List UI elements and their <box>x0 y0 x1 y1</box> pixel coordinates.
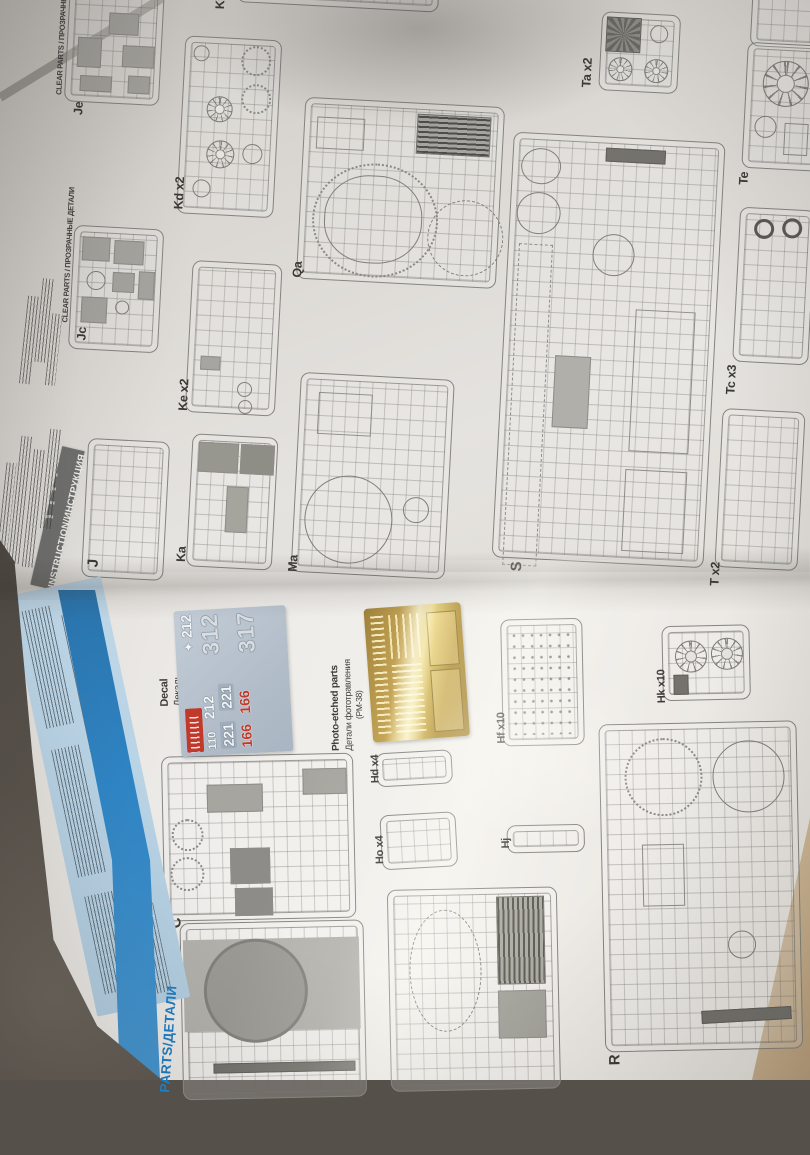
fret-panel <box>426 610 460 666</box>
sprue-box-hj <box>506 824 585 854</box>
fret-panel <box>430 668 464 732</box>
fret-parts <box>374 669 392 734</box>
sprue-part-ring <box>712 740 785 813</box>
sprue-part-gear <box>171 819 204 852</box>
sprue-part <box>213 1061 355 1074</box>
decal-number-red: 166 <box>238 724 255 748</box>
sprue-box-hd <box>375 749 453 787</box>
fret-parts <box>392 663 427 733</box>
sprue-box-hk <box>661 624 751 701</box>
sprue-part-hatched <box>496 896 546 985</box>
photo-etched-label-ru: Детали фототравления <box>341 659 354 751</box>
sprue-box-c <box>161 753 356 922</box>
sprue-label-hf: Hf x10 <box>495 712 508 743</box>
sprue-part-wheel <box>711 637 744 670</box>
sprue-label-hk: Hk x10 <box>655 669 668 703</box>
decal-maker-logo <box>185 708 204 753</box>
sprue-label-r: R <box>606 1054 623 1065</box>
sprue-part <box>642 844 685 907</box>
decal-number: 110 <box>206 731 219 749</box>
sprue-part-wheel <box>675 640 708 673</box>
photo-etched-label: Photo-etched parts Детали фототравления … <box>329 659 365 751</box>
sprue-part <box>498 990 547 1039</box>
decal-label-en: Decal <box>158 675 172 707</box>
photo-etched-fret <box>363 602 470 743</box>
sprue-label-ho: Ho x4 <box>374 836 387 865</box>
sprue-part <box>230 847 271 884</box>
decal-sheet: ✦ 212 110 212 312 221 221 317 166 166 <box>173 605 293 757</box>
sprue-label-hj: Hj <box>500 838 512 849</box>
decal-diamond: ✦ <box>183 642 195 652</box>
sprue-part <box>728 930 757 959</box>
sprue-part-gear <box>170 857 205 892</box>
sprue-label-hd: Hd x4 <box>369 755 382 784</box>
page-fold-shadow <box>0 546 810 621</box>
photo-etched-code: (PM-38) <box>353 659 366 751</box>
fret-parts <box>370 616 387 667</box>
photo-etched-label-en: Photo-etched parts <box>329 659 343 751</box>
sprue-part <box>207 784 264 813</box>
sprue-box-hf <box>500 618 585 747</box>
decal-number-red: 166 <box>236 690 253 714</box>
sprue-box-ho <box>379 811 458 870</box>
sprue-box-middle <box>387 886 561 1092</box>
sprue-part-ring <box>624 737 704 817</box>
decal-number: 221 <box>220 721 238 749</box>
decal-number: 221 <box>218 683 236 711</box>
sprue-part-arc <box>408 909 483 1032</box>
sprue-part <box>302 768 347 795</box>
decal-number: 212 <box>200 696 217 720</box>
fret-parts <box>388 613 421 659</box>
sprue-part <box>235 887 274 916</box>
sprue-box-turret-ring <box>179 919 367 1100</box>
sprue-part <box>673 675 688 695</box>
sprue-part-bolts <box>509 629 575 735</box>
sprue-part <box>701 1006 792 1024</box>
decal-number-large: 312 <box>196 613 225 656</box>
sprue-box-r <box>598 720 803 1052</box>
